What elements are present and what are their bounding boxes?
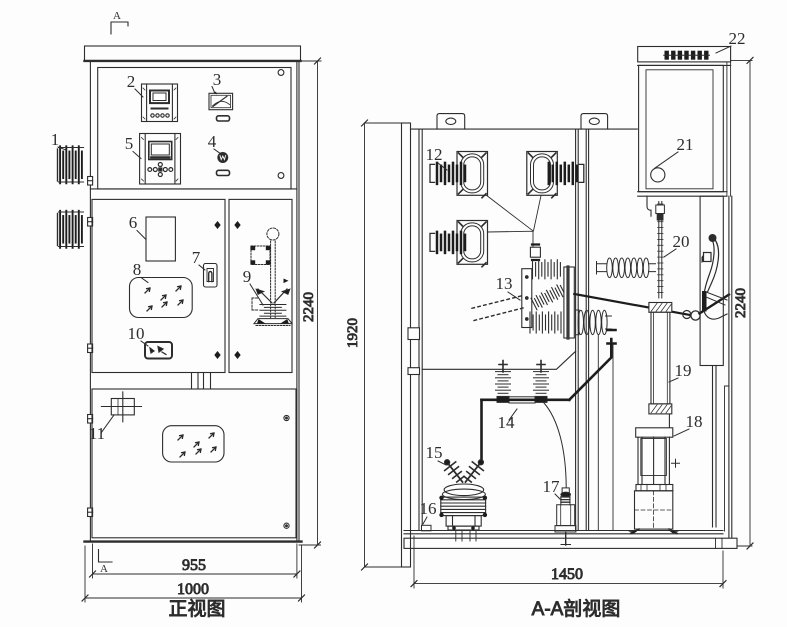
svg-text:1000: 1000 xyxy=(177,581,209,598)
svg-text:正视图: 正视图 xyxy=(168,598,225,620)
svg-text:A: A xyxy=(100,563,108,575)
svg-text:A: A xyxy=(113,10,121,22)
svg-text:21: 21 xyxy=(677,135,694,154)
svg-text:2: 2 xyxy=(127,72,136,91)
svg-text:2240: 2240 xyxy=(733,288,749,318)
svg-text:4: 4 xyxy=(208,132,217,151)
svg-text:20: 20 xyxy=(673,232,690,251)
svg-text:11: 11 xyxy=(89,424,105,443)
svg-text:18: 18 xyxy=(686,412,703,431)
svg-text:1450: 1450 xyxy=(551,566,583,583)
svg-text:15: 15 xyxy=(426,443,443,462)
svg-text:12: 12 xyxy=(426,145,443,164)
svg-text:19: 19 xyxy=(675,361,692,380)
svg-text:9: 9 xyxy=(243,267,252,286)
svg-text:7: 7 xyxy=(192,248,201,267)
svg-text:8: 8 xyxy=(133,260,142,279)
svg-text:13: 13 xyxy=(496,274,513,293)
svg-text:10: 10 xyxy=(128,324,145,343)
svg-text:22: 22 xyxy=(729,29,746,48)
svg-text:955: 955 xyxy=(182,557,206,574)
svg-text:17: 17 xyxy=(543,477,561,496)
svg-text:16: 16 xyxy=(420,499,437,518)
svg-text:5: 5 xyxy=(125,134,134,153)
svg-text:6: 6 xyxy=(129,213,138,232)
svg-text:2240: 2240 xyxy=(301,292,317,322)
svg-text:1920: 1920 xyxy=(345,318,361,348)
svg-text:3: 3 xyxy=(213,70,222,89)
svg-text:1: 1 xyxy=(51,130,60,149)
svg-text:A-A剖视图: A-A剖视图 xyxy=(532,598,621,620)
